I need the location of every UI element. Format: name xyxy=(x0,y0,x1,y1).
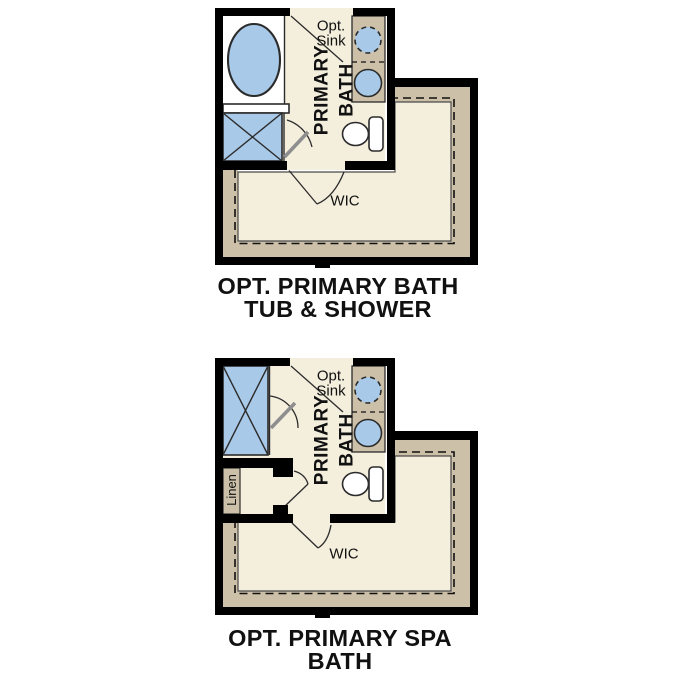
entry-door-gap xyxy=(290,8,353,16)
sink xyxy=(355,420,382,447)
tub-room xyxy=(223,16,289,113)
entry-door-gap xyxy=(290,358,353,366)
linen-label: Linen xyxy=(224,474,239,506)
diagram-title-line2: TUB & SHOWER xyxy=(244,296,432,322)
diagram-title-line2: BATH xyxy=(308,648,373,674)
floorplan-sheet: Opt. Sink PRIMARY BATH WIC OPT. PRIMARY … xyxy=(0,0,687,687)
shower xyxy=(223,366,270,455)
optional-sink xyxy=(355,377,381,403)
room-label-bath: BATH xyxy=(337,63,358,116)
floorplan-spa-bath: Opt. Sink PRIMARY BATH Linen WIC OPT. PR… xyxy=(215,358,478,674)
tub xyxy=(228,24,280,96)
sink xyxy=(355,70,382,97)
floorplan-tub-shower: Opt. Sink PRIMARY BATH WIC OPT. PRIMARY … xyxy=(215,8,478,322)
shelf xyxy=(223,104,289,113)
room-label-bath: BATH xyxy=(337,413,358,466)
shower xyxy=(223,113,284,161)
wic-label: WIC xyxy=(330,193,359,210)
room-label-primary: PRIMARY xyxy=(312,45,333,135)
room-label-primary: PRIMARY xyxy=(312,395,333,485)
wic-door-gap xyxy=(287,162,345,170)
wic-door-gap xyxy=(293,514,330,523)
wic-label: WIC xyxy=(329,546,358,563)
optional-sink xyxy=(355,27,381,53)
